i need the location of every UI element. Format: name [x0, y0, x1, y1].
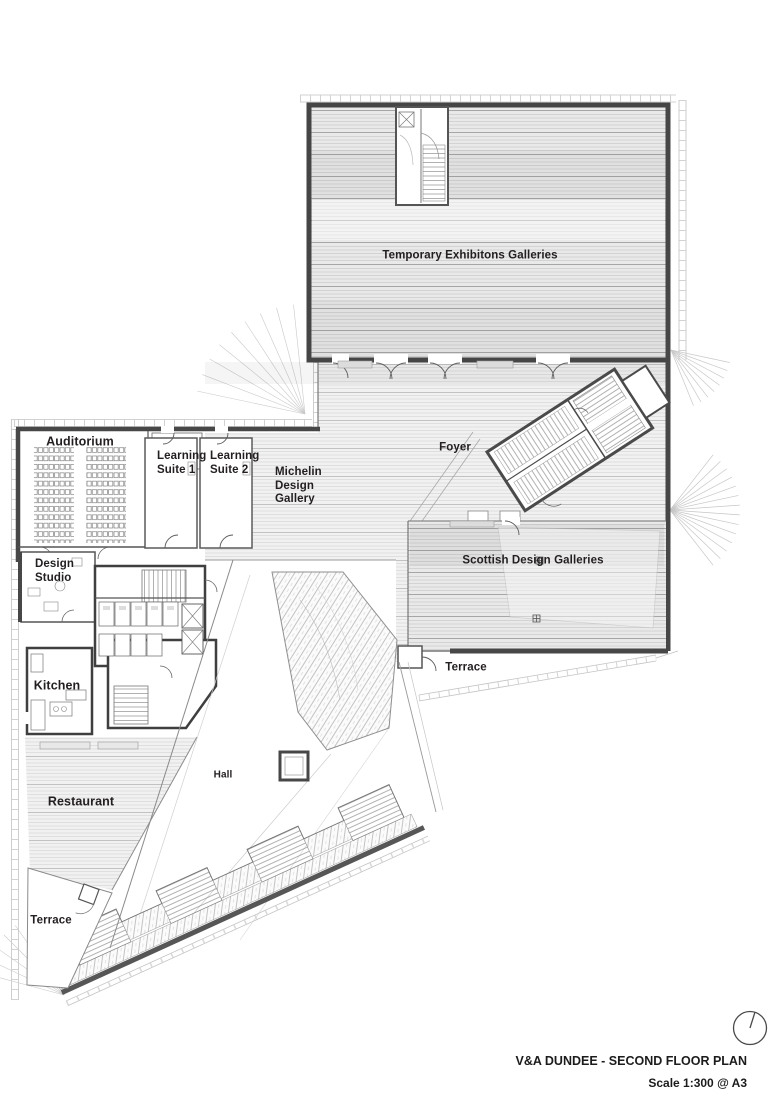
room-label-hall: Hall — [214, 768, 233, 782]
north-arrow-icon — [734, 1012, 767, 1045]
room-label-kitchen: Kitchen — [34, 679, 81, 693]
plan-title: V&A DUNDEE - SECOND FLOOR PLAN — [516, 1054, 748, 1068]
temporary-exhibitions-gallery-area — [309, 105, 668, 379]
sloped-wall-kite — [272, 572, 397, 750]
room-label-restaurant: Restaurant — [48, 795, 114, 809]
room-label-auditorium: Auditorium — [46, 435, 114, 449]
room-label-scottish-design-galleries: Scottish Design Galleries — [462, 554, 603, 568]
curved-wall-fan-right — [670, 455, 740, 565]
floor-plan: Temporary Exhibitons Galleries Foyer Aud… — [0, 0, 782, 1106]
room-label-michelin-design-gallery: Michelin Design Gallery — [275, 466, 322, 507]
gallery-stair-core — [396, 107, 448, 205]
curved-wall-fan-left — [197, 305, 305, 414]
floor-plan-drawing — [0, 0, 782, 1106]
room-label-terrace-east: Terrace — [445, 661, 486, 675]
restaurant-area — [25, 737, 197, 890]
curved-wall-fan-upper-right — [671, 350, 730, 406]
room-label-terrace-south: Terrace — [30, 914, 71, 928]
plan-scale: Scale 1:300 @ A3 — [648, 1076, 747, 1090]
room-label-learning-suite-2: Learning Suite 2 — [210, 450, 259, 477]
room-label-foyer: Foyer — [439, 441, 471, 455]
room-label-design-studio: Design Studio — [35, 558, 74, 585]
room-label-temporary-exhibitions: Temporary Exhibitons Galleries — [382, 249, 557, 263]
service-block — [95, 566, 217, 728]
room-label-learning-suite-1: Learning Suite 1 — [157, 450, 206, 477]
scottish-design-galleries-area — [408, 517, 668, 662]
